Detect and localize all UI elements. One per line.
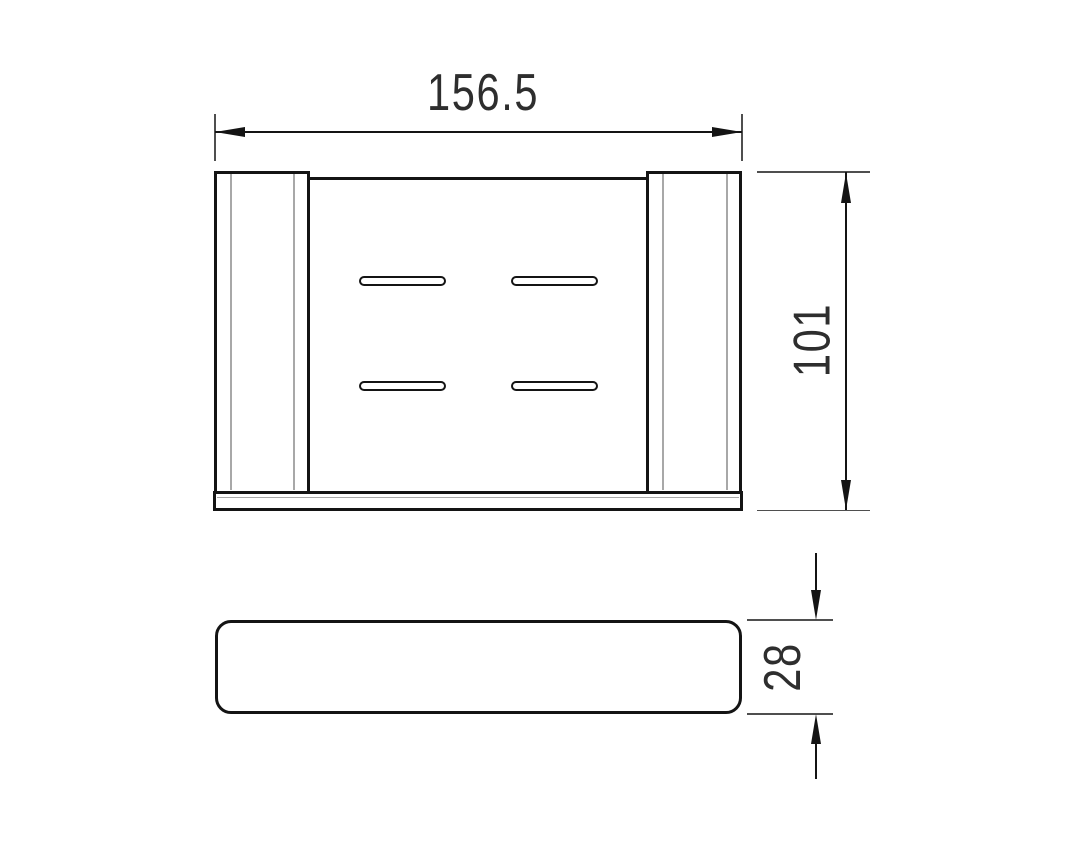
- dim-depth-label: 101: [762, 290, 862, 390]
- bracket-right-inner-line-2: [726, 174, 728, 490]
- drain-slot-top-right: [511, 276, 598, 286]
- dim-depth-extension-bottom: [757, 510, 870, 512]
- dim-height-line-lower: [815, 744, 817, 779]
- drawing-canvas: 156.5 101: [0, 0, 1080, 844]
- dim-width-arrowhead-left: [215, 127, 245, 137]
- dim-height-label: 28: [733, 617, 833, 717]
- dim-depth-line: [845, 172, 847, 510]
- bracket-left-inner-line-2: [293, 174, 295, 490]
- tray-top-edge: [310, 177, 648, 180]
- tray-front-edge-strip: [213, 491, 743, 511]
- end-bracket-right: [646, 171, 742, 491]
- drain-slot-bottom-left: [359, 381, 446, 391]
- end-bracket-left: [214, 171, 310, 491]
- drain-slot-bottom-right: [511, 381, 598, 391]
- dim-width-line: [215, 131, 742, 133]
- bracket-left-inner-line-1: [230, 174, 232, 490]
- dim-depth-arrowhead-top: [841, 173, 851, 203]
- bracket-right-inner-line-1: [662, 174, 664, 490]
- dim-height-line-upper: [815, 553, 817, 591]
- dim-height-arrowhead-bottom: [811, 714, 821, 744]
- dim-width-extension-left: [214, 114, 216, 161]
- dim-depth-extension-top: [757, 171, 870, 173]
- front-view-body: [215, 620, 742, 714]
- dim-height-arrowhead-top: [811, 590, 821, 620]
- dim-width-arrowhead-right: [712, 127, 742, 137]
- drain-slot-top-left: [359, 276, 446, 286]
- dim-width-label: 156.5: [333, 64, 633, 122]
- dim-width-extension-right: [741, 114, 743, 161]
- tray-front-edge-inner-line: [217, 497, 739, 498]
- dim-depth-arrowhead-bottom: [841, 480, 851, 510]
